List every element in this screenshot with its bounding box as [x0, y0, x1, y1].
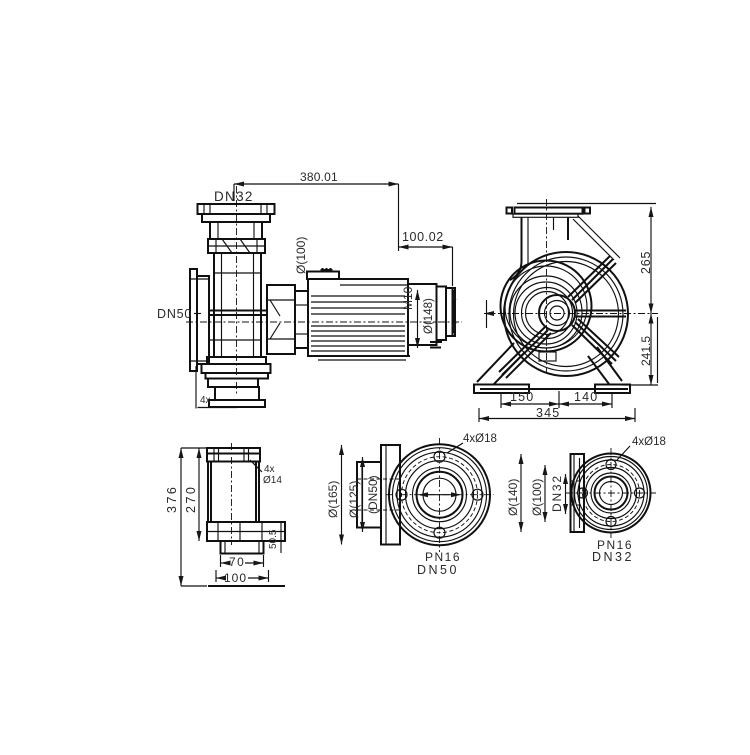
svg-text:4xØ18: 4xØ18: [632, 436, 666, 448]
svg-text:Ø(140): Ø(140): [506, 479, 520, 516]
svg-text:345: 345: [536, 406, 560, 420]
svg-text:Ø(148): Ø(148): [423, 298, 435, 334]
svg-text:70: 70: [229, 555, 245, 569]
svg-text:150: 150: [510, 390, 534, 404]
svg-text:265: 265: [639, 251, 653, 274]
svg-text:DN32: DN32: [592, 550, 634, 564]
svg-text:380.01: 380.01: [300, 170, 338, 184]
svg-text:DN50: DN50: [157, 307, 192, 321]
svg-text:4x: 4x: [200, 395, 211, 406]
svg-text:4xØ18: 4xØ18: [463, 433, 497, 445]
svg-text:(DN50): (DN50): [366, 475, 380, 514]
svg-text:100.02: 100.02: [402, 230, 444, 244]
svg-text:DN50: DN50: [417, 563, 459, 577]
svg-text:270: 270: [184, 485, 198, 513]
svg-text:Ø(125): Ø(125): [347, 481, 361, 518]
svg-text:PN16: PN16: [425, 550, 461, 564]
svg-text:Ø(165): Ø(165): [326, 481, 340, 518]
svg-text:M10: M10: [401, 286, 415, 310]
svg-text:376: 376: [165, 485, 179, 513]
svg-text:140: 140: [574, 390, 598, 404]
svg-text:4x: 4x: [264, 464, 275, 475]
svg-text:DN32: DN32: [550, 474, 564, 512]
svg-text:Ø14: Ø14: [263, 475, 282, 486]
svg-text:Ø(100): Ø(100): [530, 479, 544, 516]
svg-text:100: 100: [224, 571, 247, 585]
svg-text:Ø(100): Ø(100): [294, 237, 308, 274]
svg-text:50.5: 50.5: [268, 529, 279, 549]
svg-text:241.5: 241.5: [639, 336, 653, 366]
svg-text:DN32: DN32: [214, 189, 254, 204]
